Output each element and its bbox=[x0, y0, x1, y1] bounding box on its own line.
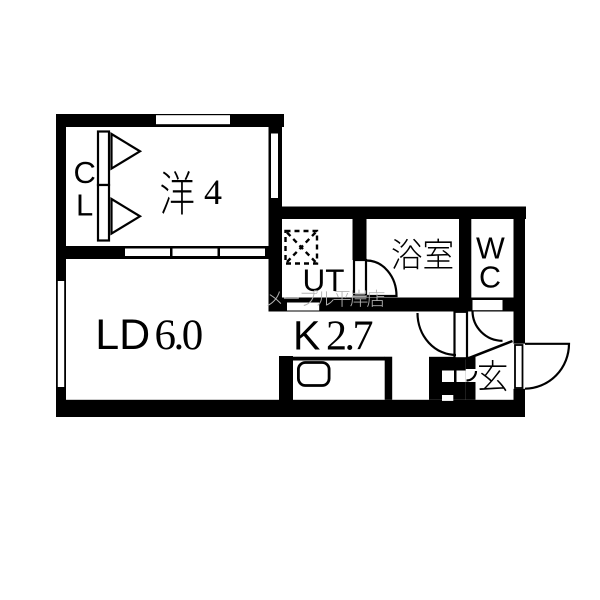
svg-text:6.0: 6.0 bbox=[155, 312, 202, 359]
svg-text:LD: LD bbox=[95, 311, 150, 359]
svg-text:C: C bbox=[479, 261, 501, 295]
svg-text:4: 4 bbox=[204, 172, 222, 212]
svg-text:UT: UT bbox=[303, 262, 345, 298]
svg-text:C: C bbox=[74, 155, 96, 190]
svg-text:K: K bbox=[293, 312, 320, 358]
svg-text:2.7: 2.7 bbox=[326, 313, 373, 359]
svg-text:L: L bbox=[76, 187, 93, 222]
